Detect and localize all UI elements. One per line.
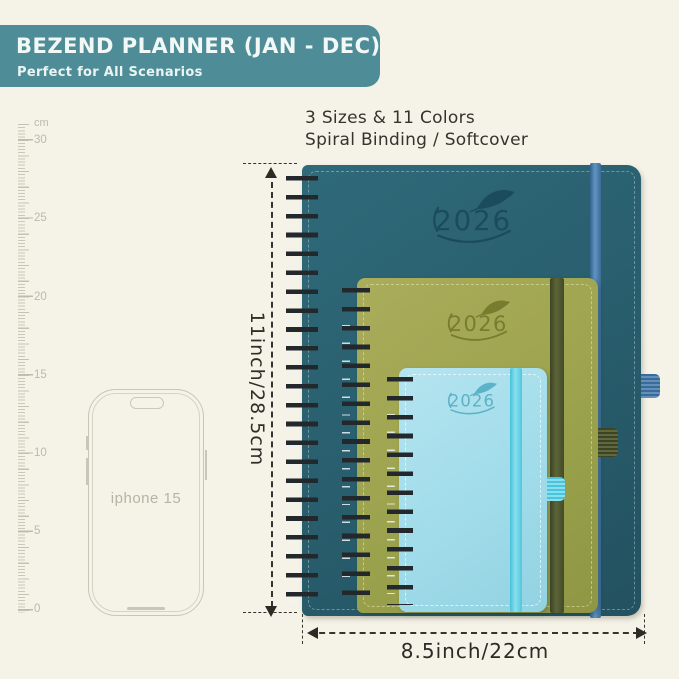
- arrow-up-icon: [265, 161, 277, 178]
- ruler-label-10: 10: [34, 447, 58, 459]
- elastic-band: [510, 368, 522, 612]
- volume-button-icon: [86, 458, 88, 485]
- ruler-label-30: 30: [34, 134, 58, 146]
- pen-loop: [641, 374, 660, 398]
- feature-line-binding: Spiral Binding / Softcover: [305, 129, 528, 151]
- dimension-line-vertical: [271, 172, 273, 607]
- ruler-label-15: 15: [34, 369, 58, 381]
- year-emblem: 2026: [444, 298, 514, 347]
- spiral-binding: [342, 288, 370, 606]
- arrow-left-icon: [301, 627, 318, 639]
- ruler-label-25: 25: [34, 212, 58, 224]
- pen-loop: [547, 477, 565, 501]
- phone-label: iphone 15: [89, 490, 203, 507]
- product-title: BEZEND PLANNER (JAN - DEC): [16, 34, 381, 58]
- feature-line-sizes: 3 Sizes & 11 Colors: [305, 107, 528, 129]
- spiral-binding: [286, 176, 318, 608]
- year-text: 2026: [434, 204, 512, 237]
- arrow-right-icon: [636, 627, 653, 639]
- elastic-band: [550, 278, 564, 613]
- volume-button-icon: [86, 436, 88, 450]
- feature-text: 3 Sizes & 11 Colors Spiral Binding / Sof…: [305, 107, 528, 151]
- ruler-label-0: 0: [34, 603, 58, 615]
- product-image: BEZEND PLANNER (JAN - DEC) Perfect for A…: [0, 0, 679, 679]
- ruler-unit-label: cm: [34, 117, 49, 129]
- year-emblem: 2026: [428, 187, 520, 251]
- ruler-major-ticks: [18, 139, 33, 612]
- home-indicator: [127, 607, 165, 610]
- year-text: 2026: [449, 312, 508, 336]
- spiral-binding: [387, 377, 413, 605]
- arrow-down-icon: [265, 606, 277, 623]
- dimension-line-horizontal: [309, 632, 639, 634]
- phone-outline: iphone 15: [88, 389, 204, 616]
- height-dimension-label: 11inch/28.5cm: [246, 309, 268, 469]
- width-dimension-label: 8.5inch/22cm: [395, 639, 555, 663]
- ruler-label-20: 20: [34, 291, 58, 303]
- dynamic-island-icon: [130, 397, 164, 409]
- power-button-icon: [205, 450, 207, 480]
- product-subtitle: Perfect for All Scenarios: [17, 65, 203, 80]
- title-banner: BEZEND PLANNER (JAN - DEC) Perfect for A…: [0, 25, 380, 87]
- ruler-label-5: 5: [34, 525, 58, 537]
- pen-loop: [598, 428, 618, 457]
- planner-small: 2026: [399, 368, 547, 612]
- year-emblem: 2026: [445, 381, 500, 419]
- year-text: 2026: [449, 392, 495, 411]
